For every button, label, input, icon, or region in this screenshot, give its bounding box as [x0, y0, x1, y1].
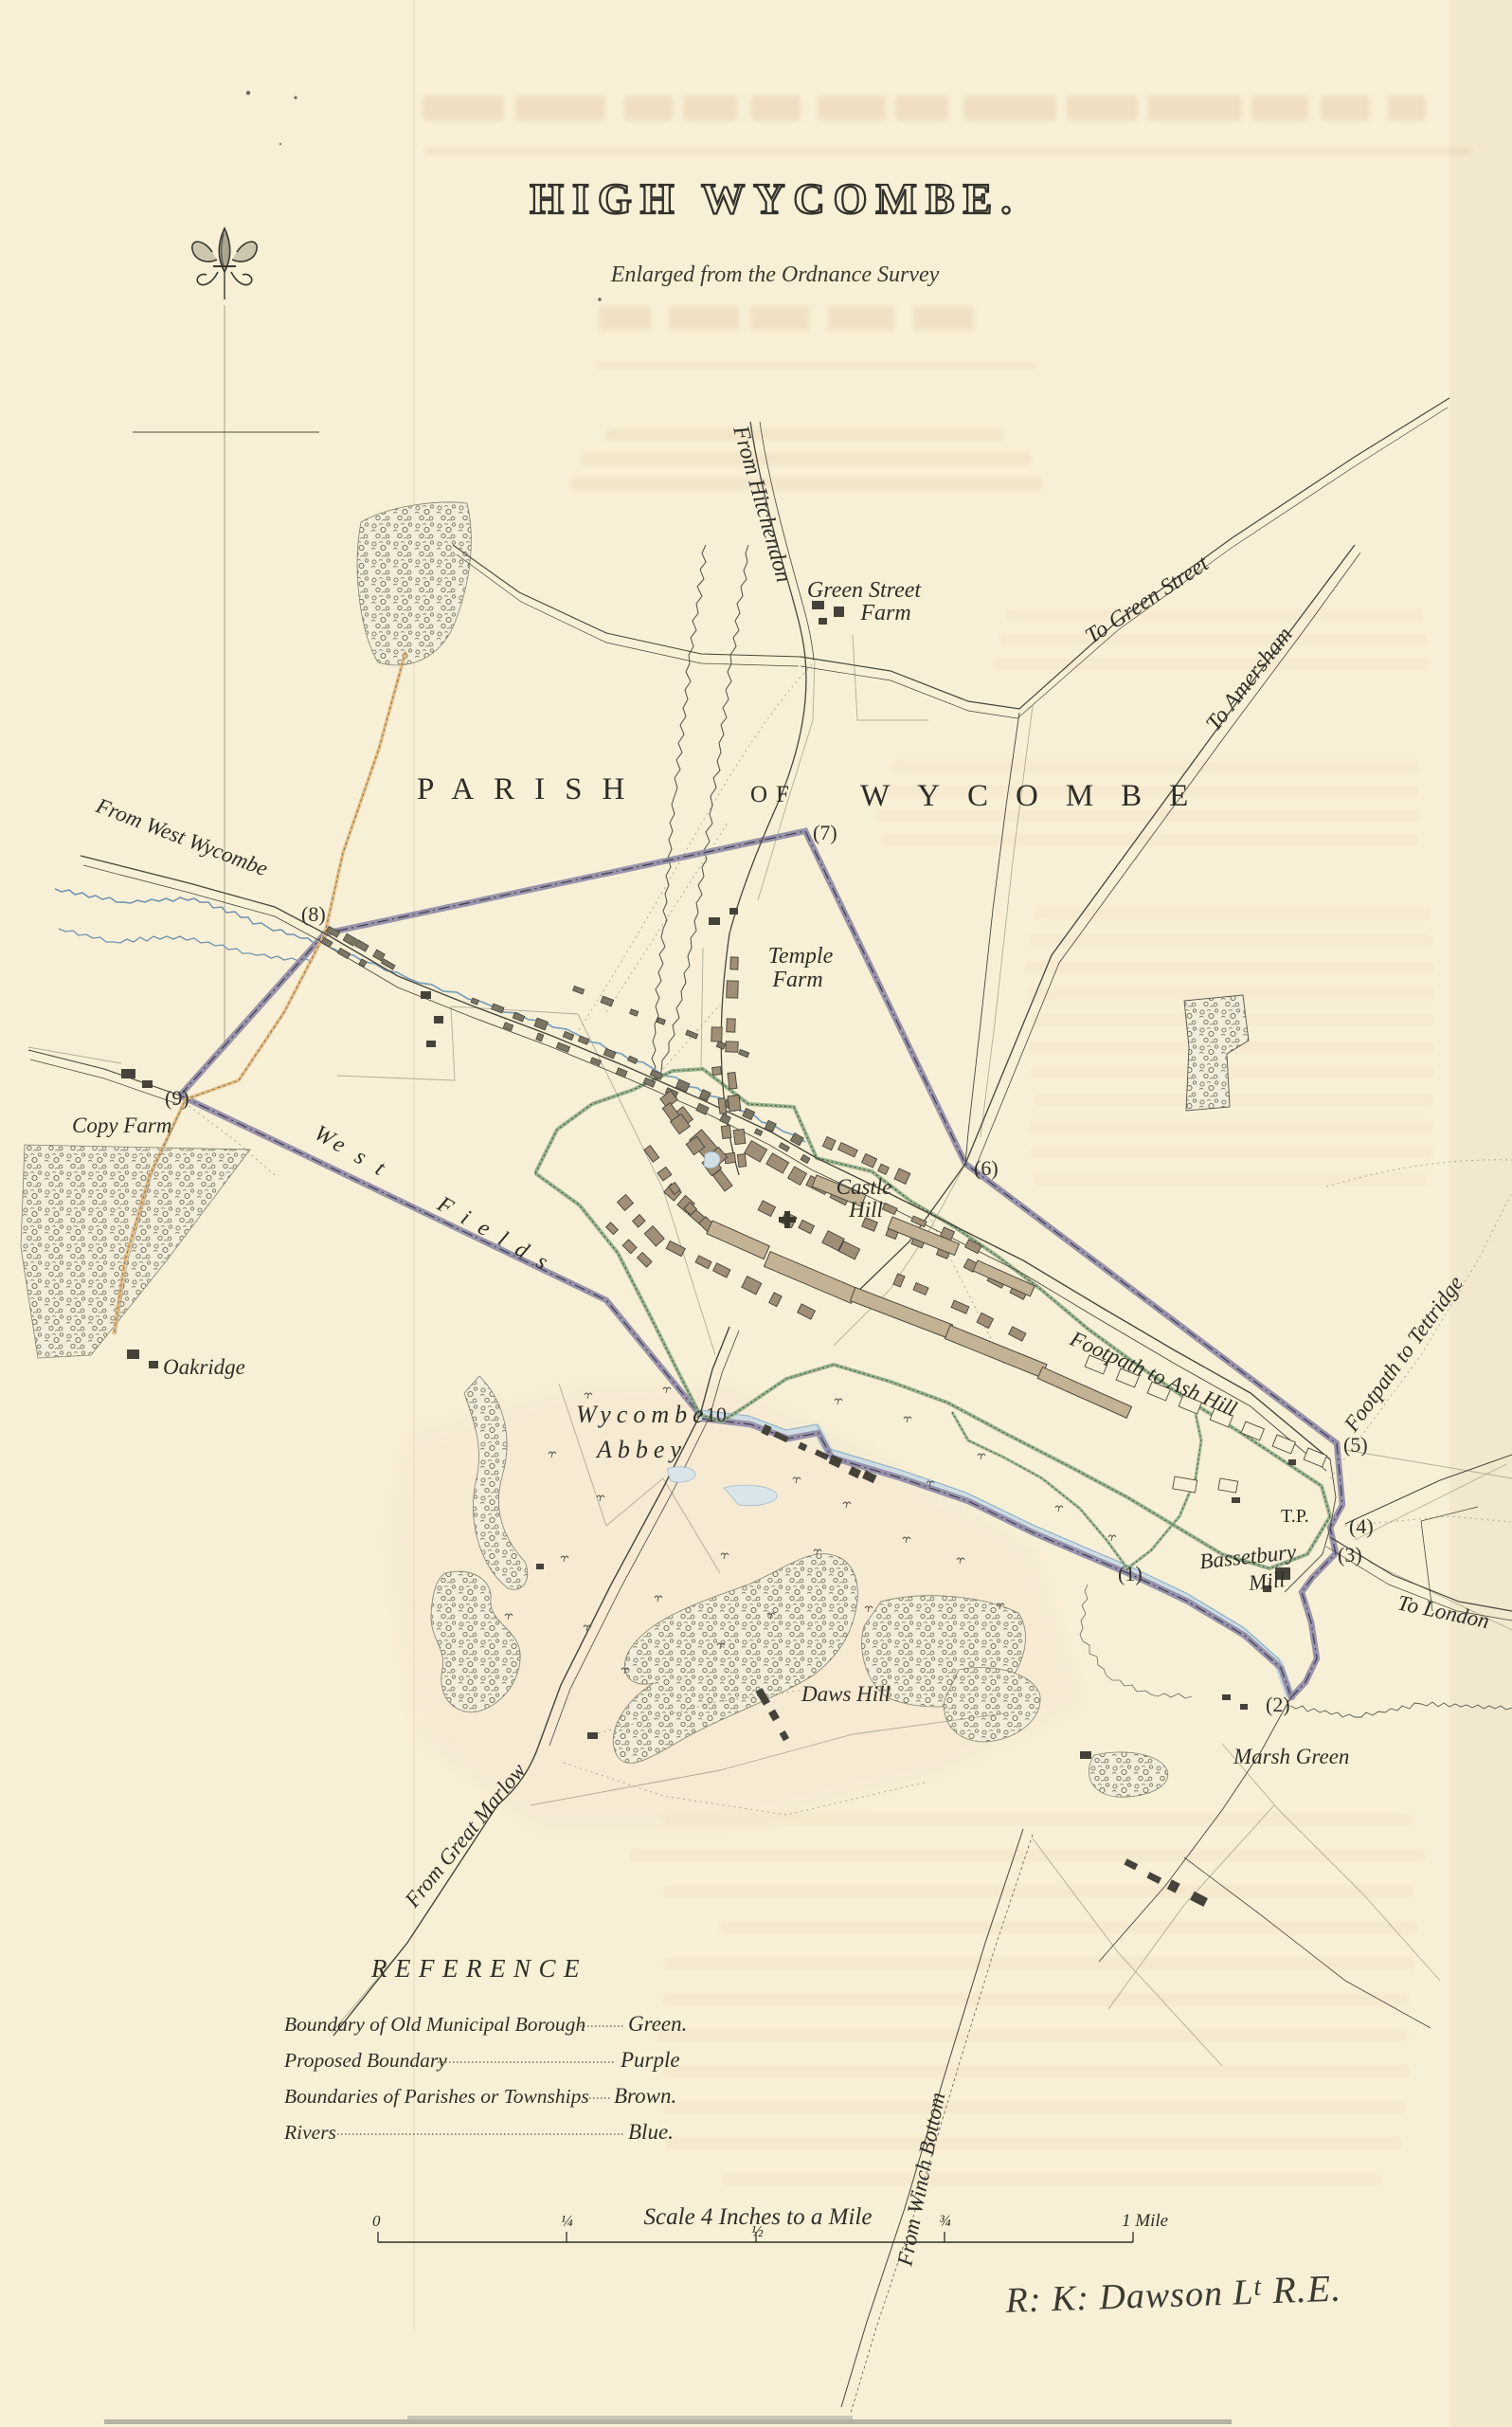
svg-text:OF: OF [750, 782, 798, 807]
svg-text:(5): (5) [1343, 1433, 1368, 1457]
svg-text:¾: ¾ [939, 2212, 951, 2230]
svg-text:WYCOMBE: WYCOMBE [860, 779, 1215, 813]
svg-text:(1): (1) [1118, 1562, 1143, 1585]
svg-text:(7): (7) [813, 821, 837, 844]
svg-text:0: 0 [372, 2212, 381, 2230]
svg-text:½: ½ [751, 2222, 764, 2240]
svg-text:(6): (6) [974, 1156, 999, 1180]
svg-text:Marsh Green: Marsh Green [1233, 1745, 1349, 1768]
svg-text:Castle: Castle [837, 1175, 892, 1199]
svg-text:Green Street: Green Street [807, 578, 923, 603]
svg-text:Hill: Hill [848, 1198, 883, 1222]
svg-text:(4): (4) [1349, 1514, 1374, 1538]
svg-text:Mill: Mill [1247, 1567, 1287, 1595]
svg-text:Copy Farm: Copy Farm [72, 1114, 171, 1137]
svg-text:HIGH WYCOMBE.: HIGH WYCOMBE. [530, 174, 1019, 223]
svg-text:(2): (2) [1266, 1693, 1290, 1716]
svg-text:¼: ¼ [561, 2212, 573, 2230]
svg-text:Farm: Farm [771, 968, 822, 992]
svg-text:Enlarged from the Ordnance Sur: Enlarged from the Ordnance Survey [610, 263, 940, 287]
svg-text:REFERENCE: REFERENCE [370, 1954, 587, 1983]
svg-text:Boundaries of Parishes or Town: Boundaries of Parishes or TownshipsBrown… [284, 2084, 676, 2108]
svg-text:Farm: Farm [859, 601, 910, 625]
svg-text:PARISH: PARISH [417, 772, 644, 806]
svg-text:Daws Hill: Daws Hill [801, 1682, 891, 1706]
svg-text:Oakridge: Oakridge [163, 1355, 245, 1379]
svg-text:Wycombe: Wycombe [576, 1401, 710, 1428]
svg-text:Temple: Temple [768, 944, 834, 969]
svg-text:1 Mile: 1 Mile [1122, 2211, 1168, 2231]
svg-text:(8): (8) [301, 902, 326, 926]
svg-text:Abbey: Abbey [595, 1436, 687, 1463]
svg-text:(3): (3) [1338, 1543, 1362, 1567]
svg-text:(9): (9) [165, 1086, 189, 1110]
svg-text:T.P.: T.P. [1281, 1506, 1309, 1527]
